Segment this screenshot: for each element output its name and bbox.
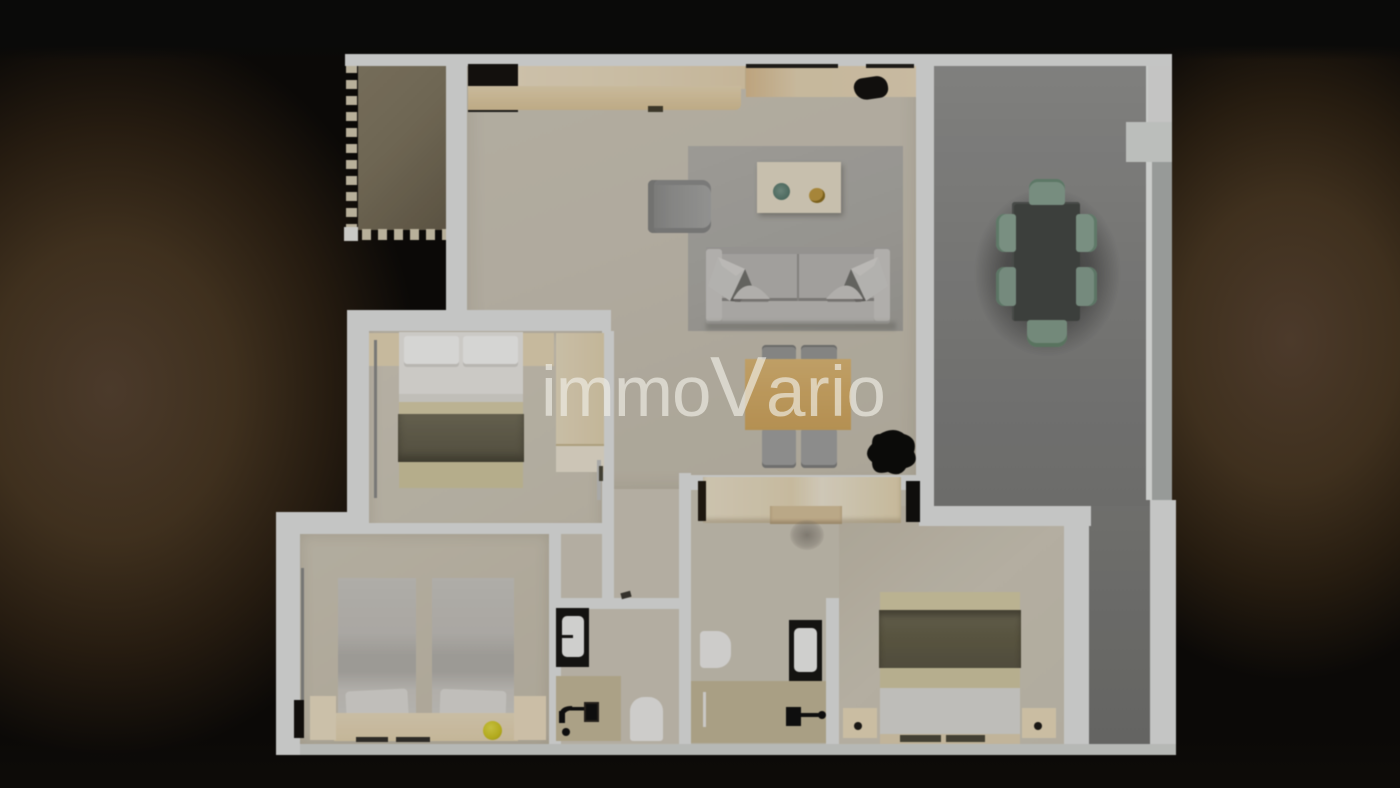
svg-text:immo: immo [541,353,711,432]
svg-text:ario: ario [766,353,886,432]
svg-text:V: V [710,340,767,435]
